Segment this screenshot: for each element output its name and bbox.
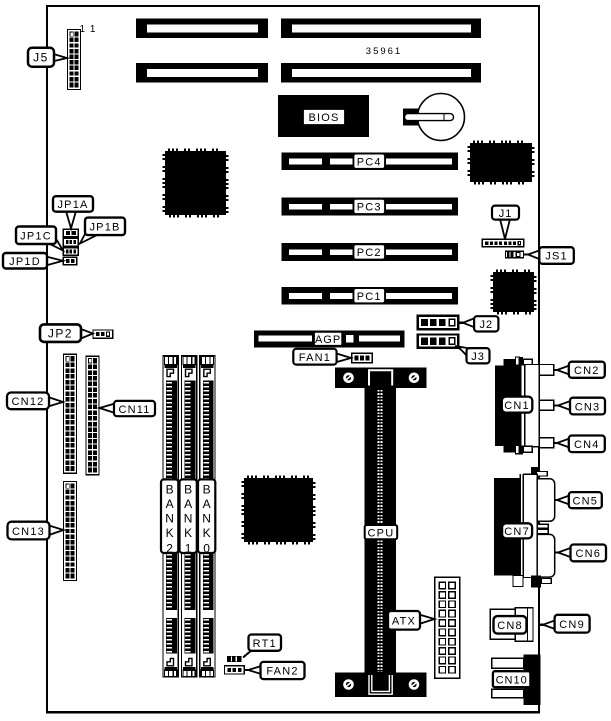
svg-text:1: 1 <box>185 542 192 556</box>
svg-text:FAN2: FAN2 <box>266 666 298 678</box>
svg-text:B: B <box>184 483 192 497</box>
svg-text:JP1A: JP1A <box>57 199 88 211</box>
svg-text:JP1B: JP1B <box>89 222 120 234</box>
svg-text:CN13: CN13 <box>12 526 45 538</box>
svg-text:J2: J2 <box>479 319 493 331</box>
svg-text:J5: J5 <box>33 50 49 64</box>
svg-text:AGP: AGP <box>315 334 341 346</box>
svg-text:N: N <box>202 512 211 526</box>
svg-text:B: B <box>166 483 174 497</box>
svg-text:CN7: CN7 <box>504 526 530 538</box>
svg-text:N: N <box>184 512 193 526</box>
svg-text:CN5: CN5 <box>572 495 598 507</box>
svg-text:CN3: CN3 <box>575 401 601 413</box>
svg-text:35961: 35961 <box>366 46 402 57</box>
svg-text:J1: J1 <box>499 208 513 220</box>
svg-text:RT1: RT1 <box>253 638 277 650</box>
svg-text:CN9: CN9 <box>559 619 585 631</box>
svg-text:K: K <box>203 526 211 540</box>
svg-text:CN1: CN1 <box>504 400 530 412</box>
svg-text:PC1: PC1 <box>357 291 382 303</box>
svg-text:0: 0 <box>203 542 210 556</box>
svg-text:2: 2 <box>166 542 173 556</box>
svg-text:CN8: CN8 <box>497 620 523 632</box>
svg-text:FAN1: FAN1 <box>299 352 331 364</box>
svg-text:A: A <box>203 497 211 511</box>
svg-text:PC2: PC2 <box>357 247 382 259</box>
svg-text:CN6: CN6 <box>575 548 601 560</box>
svg-text:N: N <box>165 512 174 526</box>
svg-text:CN11: CN11 <box>118 404 150 416</box>
svg-text:K: K <box>166 526 174 540</box>
svg-text:CPU: CPU <box>368 527 395 539</box>
svg-text:JP1C: JP1C <box>20 230 52 242</box>
svg-text:A: A <box>166 497 174 511</box>
svg-text:JS1: JS1 <box>545 251 568 263</box>
svg-text:CN12: CN12 <box>12 396 45 408</box>
svg-text:CN2: CN2 <box>574 365 600 377</box>
svg-text:A: A <box>184 497 192 511</box>
svg-text:1 1: 1 1 <box>80 24 97 35</box>
svg-text:PC4: PC4 <box>357 156 382 168</box>
svg-text:PC3: PC3 <box>357 202 382 214</box>
svg-text:B: B <box>203 483 211 497</box>
svg-text:BIOS: BIOS <box>308 112 339 124</box>
svg-text:K: K <box>184 526 192 540</box>
svg-text:CN4: CN4 <box>574 439 600 451</box>
svg-text:J3: J3 <box>471 351 485 363</box>
svg-text:JP1D: JP1D <box>9 256 41 268</box>
svg-text:CN10: CN10 <box>496 674 528 686</box>
svg-text:JP2: JP2 <box>48 326 73 340</box>
svg-text:ATX: ATX <box>392 616 416 628</box>
